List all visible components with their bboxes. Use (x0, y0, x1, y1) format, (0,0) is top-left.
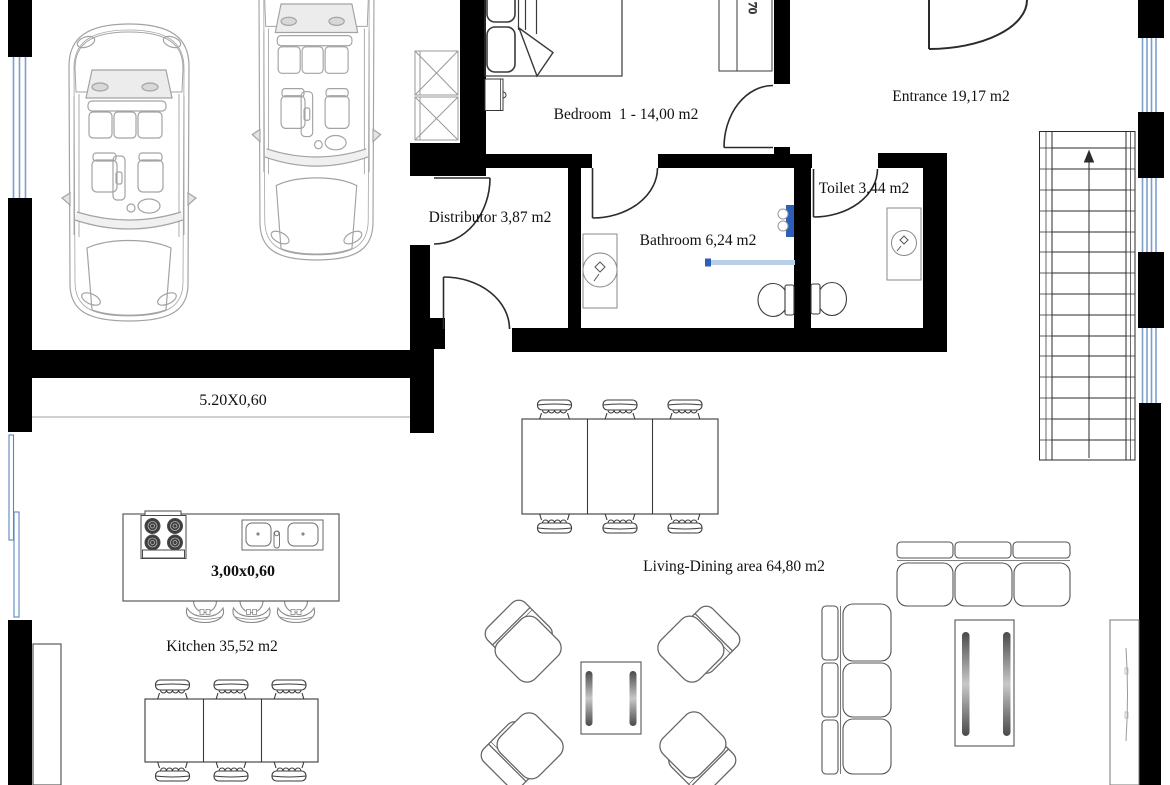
svg-text:Bathroom 6,24 m2: Bathroom 6,24 m2 (640, 232, 757, 249)
svg-text:5.20X0,60: 5.20X0,60 (199, 392, 267, 409)
svg-text:Entrance 19,17 m2: Entrance 19,17 m2 (892, 88, 1010, 105)
svg-text:Distributor 3,87 m2: Distributor 3,87 m2 (429, 209, 552, 226)
svg-text:Toilet 3,44 m2: Toilet 3,44 m2 (819, 180, 910, 197)
svg-text:Kitchen 35,52 m2: Kitchen 35,52 m2 (166, 638, 278, 655)
svg-text:Bedroom 1 - 14,00 m2: Bedroom 1 - 14,00 m2 (554, 106, 699, 123)
svg-text:Living-Dining area 64,80 m2: Living-Dining area 64,80 m2 (643, 558, 825, 575)
svg-text:3,00x0,60: 3,00x0,60 (211, 563, 275, 580)
svg-text:70: 70 (746, 2, 760, 14)
